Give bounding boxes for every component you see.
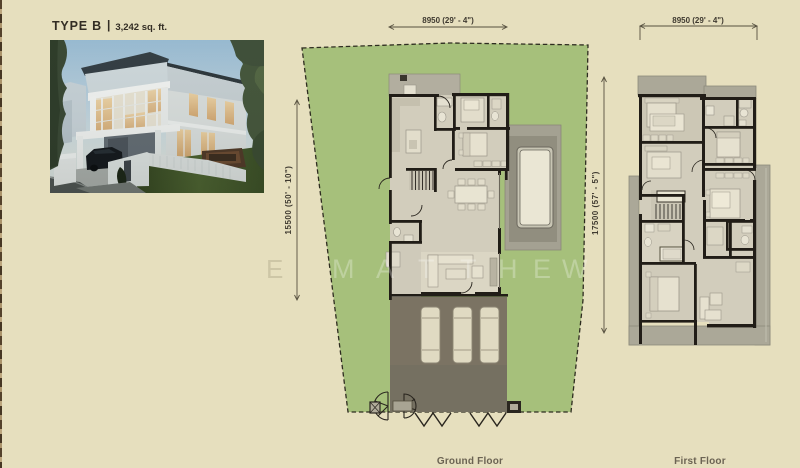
svg-text:A: A — [376, 254, 394, 284]
svg-text:17500 (57' - 5"): 17500 (57' - 5") — [591, 171, 600, 235]
svg-text:H: H — [498, 254, 518, 284]
svg-text:Ground Floor: Ground Floor — [437, 456, 503, 467]
svg-text:8950 (29' - 4"): 8950 (29' - 4") — [422, 16, 474, 25]
svg-text:E: E — [266, 254, 283, 284]
svg-text:W: W — [562, 254, 588, 284]
svg-text:T: T — [460, 254, 477, 284]
svg-text:T: T — [418, 254, 435, 284]
svg-text:8950 (29' - 4"): 8950 (29' - 4") — [672, 16, 724, 25]
svg-text:E: E — [533, 254, 551, 284]
svg-text:M: M — [332, 254, 355, 284]
svg-text:15500 (50' - 10"): 15500 (50' - 10") — [284, 166, 293, 235]
svg-text:First Floor: First Floor — [674, 456, 726, 467]
